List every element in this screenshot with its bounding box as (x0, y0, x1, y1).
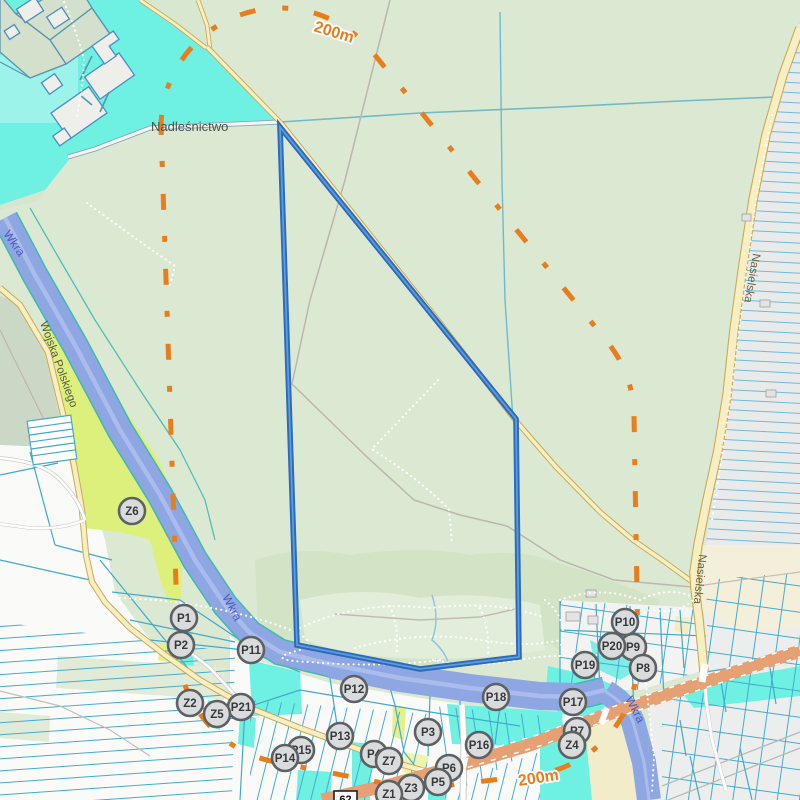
svg-text:P17: P17 (563, 697, 583, 709)
svg-text:P5: P5 (431, 777, 446, 789)
svg-text:P1: P1 (177, 613, 192, 625)
svg-text:P19: P19 (575, 660, 595, 672)
svg-text:P11: P11 (241, 645, 261, 657)
svg-text:P12: P12 (344, 684, 364, 696)
svg-text:Z3: Z3 (404, 783, 417, 795)
svg-text:P8: P8 (636, 663, 651, 675)
svg-text:P9: P9 (626, 642, 640, 654)
svg-text:Z6: Z6 (125, 506, 138, 518)
svg-text:P10: P10 (615, 617, 635, 629)
svg-text:Z4: Z4 (565, 740, 579, 752)
svg-text:P18: P18 (486, 692, 507, 704)
svg-text:P14: P14 (275, 753, 296, 765)
svg-text:Z1: Z1 (382, 789, 396, 800)
svg-text:P21: P21 (231, 702, 252, 714)
svg-text:P2: P2 (174, 640, 188, 652)
svg-text:P16: P16 (469, 740, 489, 752)
svg-text:P13: P13 (330, 731, 350, 743)
svg-text:Z5: Z5 (210, 709, 224, 721)
svg-text:Z2: Z2 (183, 698, 196, 710)
svg-text:P20: P20 (602, 641, 622, 653)
svg-text:P3: P3 (421, 727, 435, 739)
svg-text:Nadleśnictwo: Nadleśnictwo (151, 119, 228, 134)
svg-text:Z7: Z7 (382, 756, 395, 768)
svg-text:62: 62 (339, 794, 351, 800)
